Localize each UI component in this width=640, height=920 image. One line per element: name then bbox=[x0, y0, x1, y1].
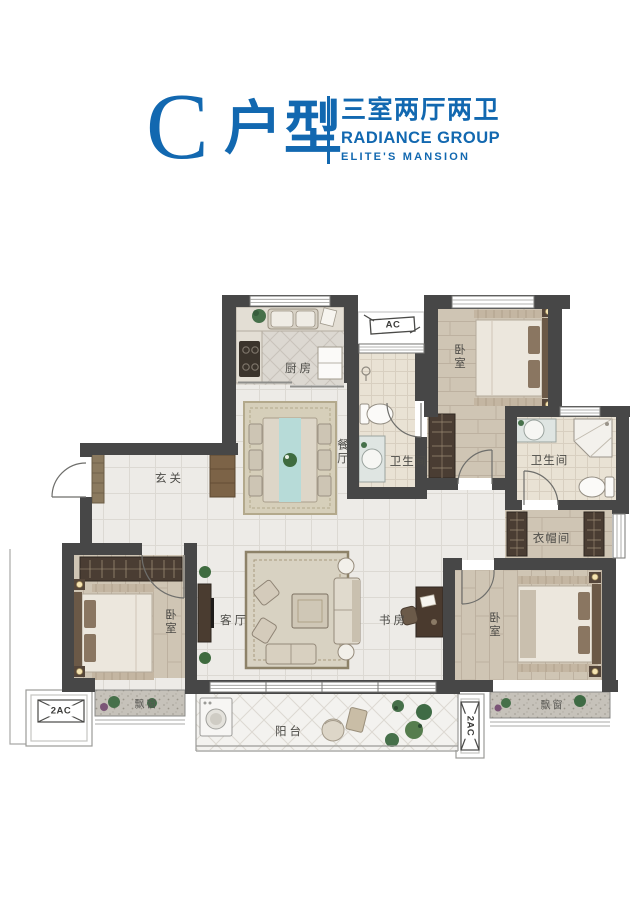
dining-chair bbox=[318, 476, 331, 496]
label-entry: 玄关 bbox=[152, 470, 184, 486]
label-bay-window-left: 飘窗 bbox=[132, 696, 159, 711]
label-bathroom1: 卫生间 bbox=[387, 453, 428, 469]
window bbox=[359, 344, 424, 353]
plant bbox=[518, 420, 524, 426]
dining-chair bbox=[318, 450, 331, 470]
bed-headboard bbox=[592, 584, 601, 664]
pillow bbox=[528, 360, 540, 388]
plant bbox=[392, 700, 404, 712]
plant bbox=[405, 721, 423, 739]
plant bbox=[199, 566, 211, 578]
pillow bbox=[578, 592, 590, 620]
hall-cabinet bbox=[210, 455, 235, 497]
pillow bbox=[84, 634, 96, 662]
plant bbox=[416, 704, 432, 720]
label-balcony: 阳台 bbox=[272, 723, 304, 739]
lamp bbox=[592, 574, 598, 580]
sofa-back bbox=[352, 580, 360, 642]
hall-wing-floor bbox=[424, 490, 506, 560]
label-kitchen: 厨房 bbox=[282, 360, 314, 376]
side-table bbox=[338, 644, 354, 660]
tv-cabinet bbox=[198, 584, 211, 642]
flower bbox=[495, 705, 502, 712]
label-bay-window-right: 飘窗 bbox=[538, 697, 565, 712]
floor-plan: 厨房 餐厅 玄关 卫生间 卧室 卫生间 衣帽间 卧室 书房 客厅 卧室 飘窗 飘… bbox=[0, 0, 640, 920]
dining-chair bbox=[249, 476, 262, 496]
label-ac: AC bbox=[384, 320, 403, 331]
entry-door bbox=[52, 463, 86, 497]
desk-lamp bbox=[431, 619, 437, 625]
label-cloakroom: 衣帽间 bbox=[530, 530, 571, 546]
label-2ac-right: 2AC bbox=[465, 714, 476, 739]
dining-chair bbox=[249, 424, 262, 444]
pillow bbox=[528, 326, 540, 354]
toilet bbox=[605, 477, 614, 497]
vanity-sink bbox=[362, 449, 382, 469]
plant bbox=[574, 695, 586, 707]
lamp bbox=[77, 669, 83, 675]
bed-runner bbox=[474, 398, 544, 406]
pillow bbox=[84, 600, 96, 628]
plant bbox=[108, 696, 120, 708]
plant bbox=[501, 698, 511, 708]
dining-chair bbox=[318, 424, 331, 444]
label-bathroom2: 卫生间 bbox=[528, 452, 569, 468]
label-bedroom1: 卧室 bbox=[451, 344, 467, 371]
table-centerpiece bbox=[283, 453, 297, 467]
pillow bbox=[578, 626, 590, 654]
bed-runner bbox=[92, 672, 154, 680]
window bbox=[560, 407, 600, 416]
shoe-cabinet bbox=[92, 453, 104, 503]
plant bbox=[361, 442, 367, 448]
tv bbox=[211, 598, 214, 628]
label-bedroom3: 卧室 bbox=[162, 609, 178, 636]
bed-runner bbox=[92, 584, 154, 592]
side-table bbox=[338, 558, 354, 574]
flower bbox=[100, 703, 108, 711]
dining-furniture bbox=[244, 402, 336, 514]
label-living: 客厅 bbox=[217, 612, 249, 628]
window bbox=[250, 296, 330, 306]
desk bbox=[416, 587, 443, 637]
lamp bbox=[592, 669, 598, 675]
dining-chair bbox=[249, 450, 262, 470]
window bbox=[613, 514, 625, 558]
lamp bbox=[77, 582, 83, 588]
label-study: 书房 bbox=[376, 612, 408, 628]
bed-headboard bbox=[74, 592, 82, 674]
label-master-bedroom: 卧室 bbox=[486, 612, 502, 639]
round-chair bbox=[322, 719, 344, 741]
bed-runner bbox=[474, 310, 544, 318]
bed-throw bbox=[520, 590, 536, 658]
plant bbox=[385, 733, 399, 747]
master-bedroom-furniture bbox=[518, 572, 601, 677]
stove bbox=[239, 341, 260, 377]
coffee-table bbox=[292, 594, 328, 628]
plant bbox=[199, 652, 211, 664]
vanity-sink bbox=[524, 420, 544, 440]
window bbox=[452, 296, 534, 308]
label-2ac-left: 2AC bbox=[49, 706, 74, 717]
label-dining: 餐厅 bbox=[334, 439, 350, 466]
balcony-sliding-door bbox=[210, 682, 436, 692]
